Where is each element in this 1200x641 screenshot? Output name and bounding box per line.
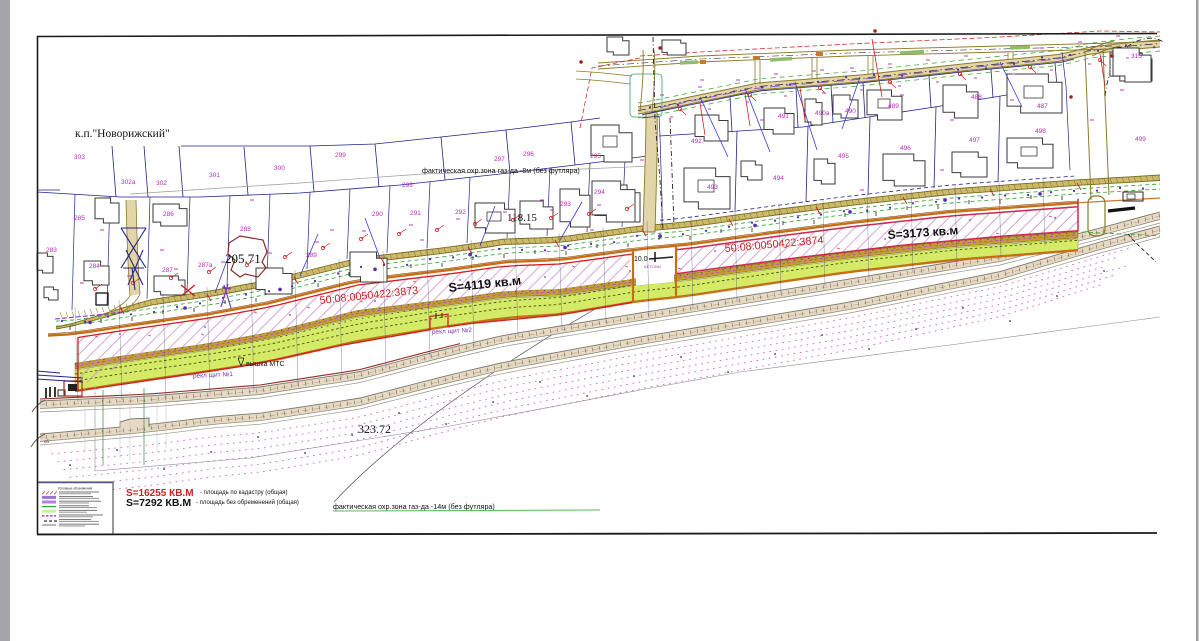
svg-text:296: 296 <box>523 151 534 158</box>
svg-text:490: 490 <box>845 108 856 115</box>
svg-text:286: 286 <box>163 211 174 218</box>
svg-text:301: 301 <box>209 172 220 179</box>
svg-text:- площадь без обременений (общ: - площадь без обременений (общая) <box>196 499 299 506</box>
svg-text:493: 493 <box>707 184 718 191</box>
svg-text:495: 495 <box>838 153 849 160</box>
svg-text:290: 290 <box>372 211 383 218</box>
svg-text:496: 496 <box>900 145 911 152</box>
svg-text:сб: сб <box>44 439 49 444</box>
svg-text:Условные обозначения: Условные обозначения <box>58 487 93 491</box>
svg-text:494: 494 <box>773 175 784 182</box>
svg-text:288: 288 <box>240 226 251 233</box>
svg-text:298: 298 <box>402 182 413 189</box>
svg-text:302: 302 <box>156 180 167 187</box>
svg-text:фактическая охр.зона газ-да -1: фактическая охр.зона газ-да -14м (без фу… <box>333 502 495 511</box>
svg-text:292: 292 <box>455 209 466 216</box>
svg-text:297: 297 <box>494 156 505 163</box>
svg-text:315: 315 <box>1131 53 1142 60</box>
svg-text:490а: 490а <box>815 110 830 117</box>
svg-text:фактическая охр.зона газ-да -8: фактическая охр.зона газ-да -8м (без фут… <box>422 166 580 175</box>
svg-text:491: 491 <box>778 113 789 120</box>
svg-text:287а: 287а <box>198 262 213 269</box>
svg-text:293: 293 <box>560 201 571 208</box>
svg-text:283: 283 <box>46 247 57 254</box>
svg-text:295: 295 <box>590 153 601 160</box>
svg-text:10.0: 10.0 <box>634 256 648 263</box>
svg-text:499: 499 <box>1135 136 1146 143</box>
svg-text:299: 299 <box>335 152 346 159</box>
svg-text:303: 303 <box>74 154 85 161</box>
svg-text:302а: 302а <box>121 179 136 186</box>
svg-text:291: 291 <box>410 210 421 217</box>
svg-text:- площадь по кадастру (общая): - площадь по кадастру (общая) <box>200 490 288 496</box>
svg-text:294: 294 <box>594 189 605 196</box>
svg-text:287: 287 <box>162 267 173 274</box>
svg-text:498: 498 <box>1035 128 1046 135</box>
svg-text:489: 489 <box>888 103 899 110</box>
svg-text:S=7292 КВ.М: S=7292 КВ.М <box>126 497 191 509</box>
svg-text:вышка МТС: вышка МТС <box>246 361 285 368</box>
svg-text:323.72: 323.72 <box>358 422 391 436</box>
svg-text:289: 289 <box>306 252 317 259</box>
svg-text:497: 497 <box>969 137 980 144</box>
svg-text:284: 284 <box>89 263 100 270</box>
svg-text:к.п."Новорижский": к.п."Новорижский" <box>75 128 170 140</box>
svg-text:285: 285 <box>74 215 85 222</box>
svg-text:488: 488 <box>971 94 982 101</box>
svg-text:300: 300 <box>274 165 285 172</box>
svg-text:118.15: 118.15 <box>507 212 537 224</box>
svg-text:487: 487 <box>1037 103 1048 110</box>
svg-text:205.71: 205.71 <box>225 251 261 266</box>
svg-text:БЕТОНЫ: БЕТОНЫ <box>644 264 662 269</box>
svg-text:492: 492 <box>691 138 702 145</box>
